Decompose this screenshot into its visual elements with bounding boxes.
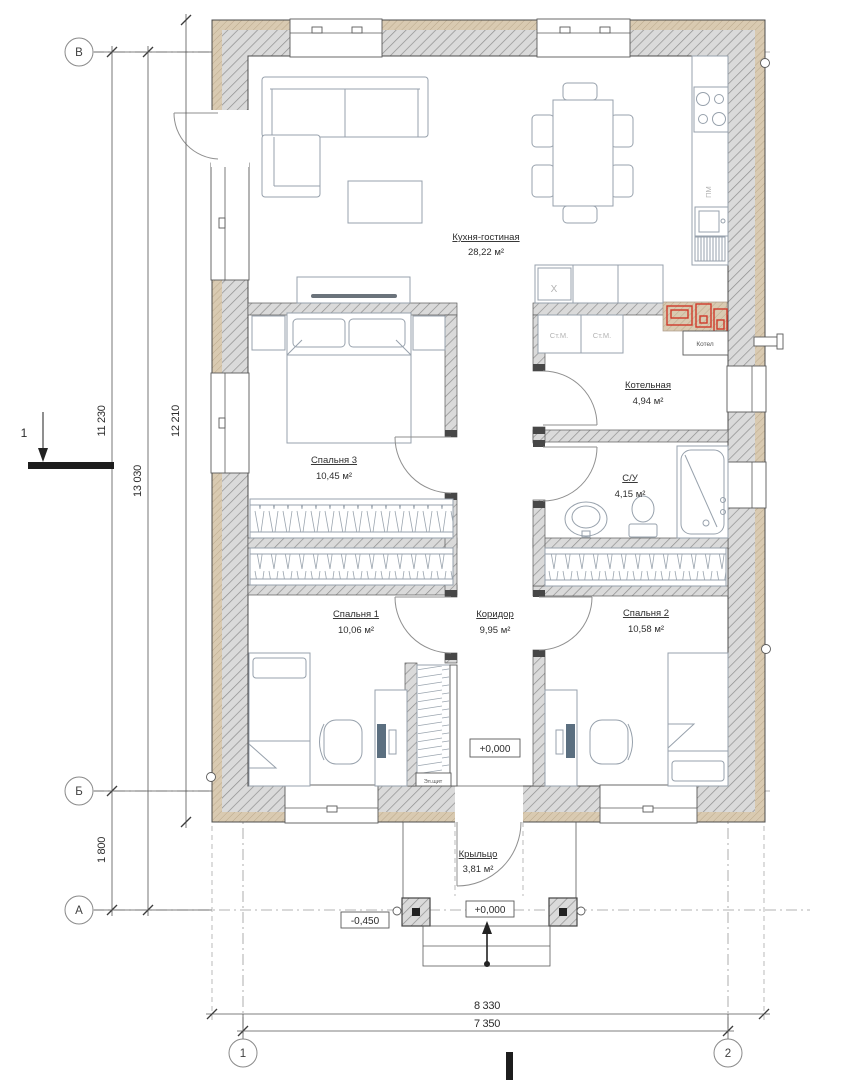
door-boiler: [543, 371, 597, 425]
dim-8330: 8 330: [474, 1000, 500, 1012]
svg-text:4,94 м²: 4,94 м²: [633, 396, 664, 407]
room-label-bathroom: С/У 4,15 м²: [615, 473, 646, 500]
axis-label-v: В: [75, 47, 83, 59]
axis-label-2: 2: [725, 1048, 731, 1060]
door-bedroom3: [395, 437, 451, 493]
chair-2: [590, 720, 633, 764]
svg-text:С/У: С/У: [622, 473, 639, 484]
section-mark-bottom: [506, 1052, 513, 1080]
dining-table: [553, 100, 613, 206]
bedroom1-furniture: [249, 653, 407, 786]
door-bedroom1: [395, 597, 451, 653]
window-left-upper: [211, 163, 249, 280]
room-label-corridor: Коридор 9,95 м²: [476, 609, 514, 636]
window-top-left: [290, 19, 382, 57]
svg-text:10,45 м²: 10,45 м²: [316, 471, 352, 482]
coffee-table: [348, 181, 422, 223]
window-right-bathroom: [727, 462, 766, 508]
window-bottom-right: [600, 785, 697, 823]
axis-label-1: 1: [240, 1048, 246, 1060]
section-number: 1: [21, 426, 28, 440]
svg-text:Коридор: Коридор: [476, 609, 514, 620]
svg-text:28,22 м²: 28,22 м²: [468, 247, 504, 258]
porch-column-right: [549, 898, 577, 926]
svg-text:4,15 м²: 4,15 м²: [615, 489, 646, 500]
svg-text:3,81 м²: 3,81 м²: [463, 864, 494, 875]
svg-text:Спальня 2: Спальня 2: [623, 608, 669, 619]
nightstand-left: [252, 316, 285, 350]
room-label-bedroom1: Спальня 1 10,06 м²: [333, 609, 379, 636]
bathroom-fixtures: [565, 446, 728, 538]
door-bedroom2: [539, 597, 592, 650]
svg-text:Крыльцо: Крыльцо: [459, 849, 498, 860]
wardrobe-bedroom2: [545, 548, 726, 586]
monitor-2: [566, 724, 575, 758]
entry-arrow: [482, 921, 492, 967]
room-label-boiler: Котельная 4,94 м²: [625, 380, 671, 407]
bedroom2-furniture: [545, 653, 728, 786]
floor-plan-canvas: Кухня-гостиная 28,22 м² Спальня 3 10,45 …: [0, 0, 851, 1080]
elevation-porch: +0,000: [475, 905, 506, 916]
dining-set: [532, 83, 633, 223]
svg-text:9,95 м²: 9,95 м²: [480, 625, 511, 636]
tv-stand: [297, 277, 410, 303]
window-left-lower: [211, 373, 249, 473]
room-label-bedroom3: Спальня 3 10,45 м²: [311, 455, 357, 482]
kitchen-unit-label: Х: [551, 284, 558, 295]
window-right-boiler: [727, 366, 766, 412]
svg-text:Спальня 3: Спальня 3: [311, 455, 357, 466]
monitor-1: [377, 724, 386, 758]
wardrobe-bedroom3: [250, 499, 453, 538]
dim-13030: 13 030: [132, 465, 144, 497]
dim-11230: 11 230: [96, 405, 108, 436]
svg-text:Котельная: Котельная: [625, 380, 671, 391]
electrical-panel-label: Эл.щит: [424, 779, 443, 785]
bathtub: [677, 446, 728, 538]
elevation-corridor: +0,000: [480, 744, 511, 755]
floor-plan-drawing: Кухня-гостиная 28,22 м² Спальня 3 10,45 …: [0, 0, 851, 1080]
dim-1800: 1 800: [96, 837, 108, 863]
single-bed-1: [249, 653, 310, 786]
room-label-bedroom2: Спальня 2 10,58 м²: [623, 608, 669, 635]
boiler-label: Котел: [696, 341, 714, 348]
porch-column-left: [402, 898, 430, 926]
window-top-right: [537, 19, 630, 57]
svg-text:10,06 м²: 10,06 м²: [338, 625, 374, 636]
svg-text:10,58 м²: 10,58 м²: [628, 624, 664, 635]
washer-label-1: Ст.М.: [550, 331, 568, 340]
dishwasher-label: ПМ: [704, 186, 713, 198]
room-label-porch: Крыльцо 3,81 м²: [459, 849, 498, 875]
svg-text:Спальня 1: Спальня 1: [333, 609, 379, 620]
elevation-ground: -0,450: [351, 916, 380, 927]
room-label-kitchen-living: Кухня-гостиная 28,22 м²: [452, 232, 519, 258]
dim-12210: 12 210: [170, 405, 182, 437]
nightstand-right: [413, 316, 445, 350]
axis-label-a: А: [75, 905, 83, 917]
corridor-storage-closet: [416, 665, 457, 786]
axis-label-b: Б: [75, 786, 83, 798]
chair-1: [320, 720, 363, 764]
bathroom-sink: [565, 502, 607, 537]
sofa: [262, 77, 428, 197]
porch: [341, 822, 585, 967]
washer-label-2: Ст.М.: [593, 331, 611, 340]
svg-text:Кухня-гостиная: Кухня-гостиная: [452, 232, 519, 243]
double-bed: [287, 313, 411, 443]
door-bathroom: [543, 447, 597, 501]
dim-7350: 7 350: [474, 1018, 500, 1030]
wardrobe-bedroom1: [250, 548, 453, 585]
window-bottom-left: [285, 785, 378, 823]
bedroom3-furniture: [252, 313, 445, 443]
single-bed-2: [668, 653, 728, 786]
toilet: [629, 496, 657, 537]
